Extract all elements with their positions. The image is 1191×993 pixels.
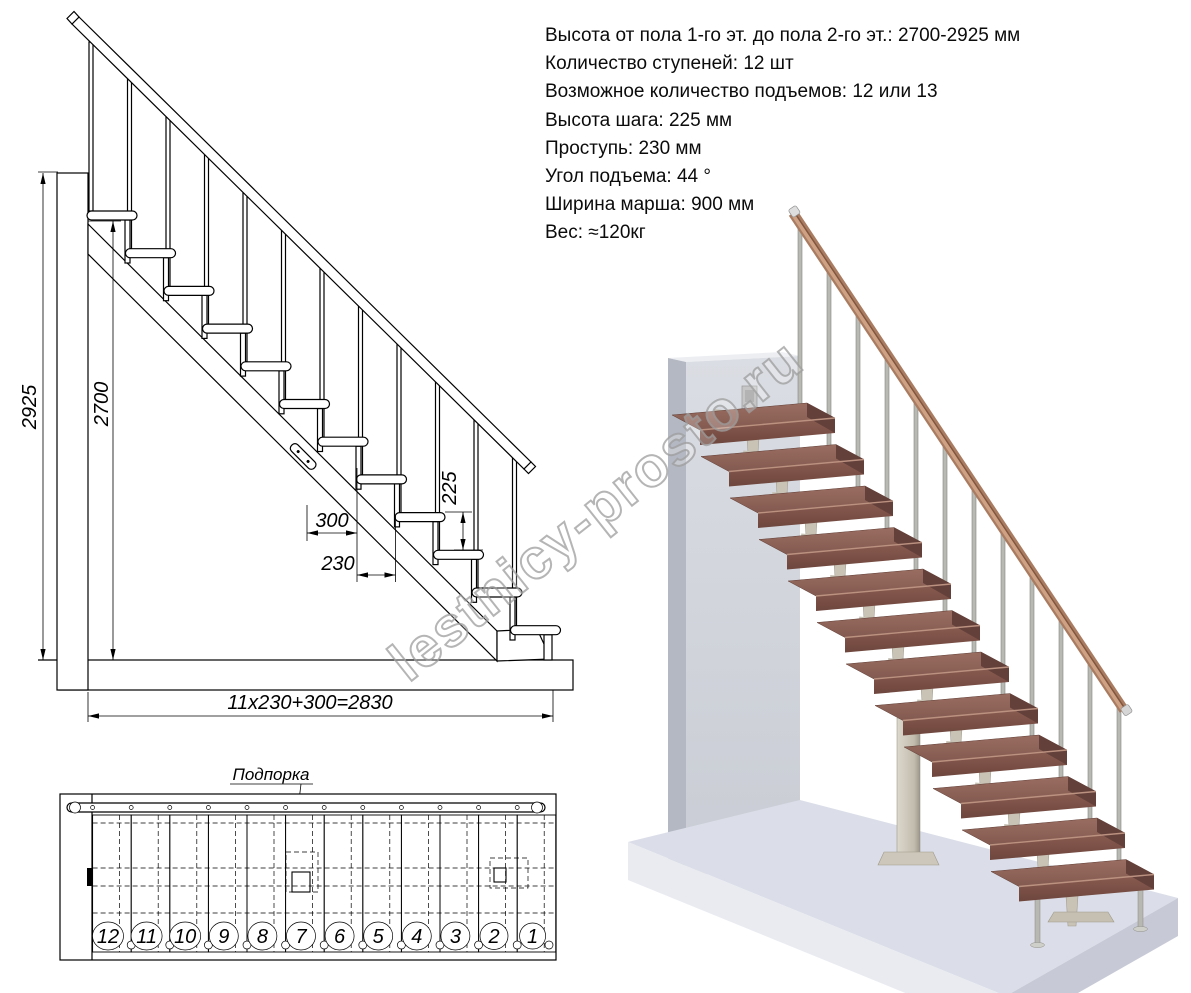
dim-label-2925: 2925 bbox=[19, 384, 41, 430]
support-label: Подпорка bbox=[233, 765, 310, 784]
step-number: 6 bbox=[334, 926, 346, 948]
step-number: 11 bbox=[136, 926, 157, 948]
step-number: 10 bbox=[174, 926, 196, 948]
spec-text-block: Высота от пола 1-го эт. до пола 2-го эт.… bbox=[545, 22, 1105, 248]
spec-line: Высота шага: 225 мм bbox=[545, 107, 1105, 135]
step-number: 4 bbox=[411, 926, 422, 948]
spec-line: Вес: ≈120кг bbox=[545, 219, 1105, 247]
elevation-wall-post bbox=[57, 173, 88, 690]
dim-label-total-run: 11x230+300=2830 bbox=[227, 692, 392, 714]
plan-view: Подпорка bbox=[0, 755, 600, 993]
step-number: 12 bbox=[97, 926, 119, 948]
spec-line: Высота от пола 1-го эт. до пола 2-го эт.… bbox=[545, 22, 1105, 50]
step-number: 1 bbox=[527, 926, 538, 948]
dim-label-225: 225 bbox=[439, 470, 461, 505]
dimension-floor-height: 2700 bbox=[88, 221, 121, 660]
elevation-balusters bbox=[89, 42, 517, 626]
elevation-drawing: 2925 2700 225 300 230 bbox=[0, 0, 600, 760]
step-number: 3 bbox=[450, 926, 461, 948]
elevation-floor bbox=[38, 660, 573, 690]
spec-line: Ширина марша: 900 мм bbox=[545, 191, 1105, 219]
dimension-total-height: 2925 bbox=[19, 172, 58, 660]
spec-line: Возможное количество подъемов: 12 или 13 bbox=[545, 78, 1105, 106]
dim-label-2700: 2700 bbox=[91, 382, 113, 428]
step-number: 5 bbox=[373, 926, 385, 948]
step-number: 9 bbox=[218, 926, 229, 948]
step-number: 7 bbox=[295, 926, 307, 948]
step-number: 8 bbox=[257, 926, 268, 948]
dimension-total-run: 11x230+300=2830 bbox=[88, 690, 553, 722]
plan-handrail-bar bbox=[67, 802, 545, 813]
spec-line: Проступь: 230 мм bbox=[545, 135, 1105, 163]
dim-label-300: 300 bbox=[315, 510, 348, 532]
step-number: 2 bbox=[487, 926, 499, 948]
spec-line: Количество ступеней: 12 шт bbox=[545, 50, 1105, 78]
spec-line: Угол подъема: 44 ° bbox=[545, 163, 1105, 191]
dim-label-230: 230 bbox=[320, 553, 354, 575]
render-3d bbox=[626, 200, 1191, 993]
